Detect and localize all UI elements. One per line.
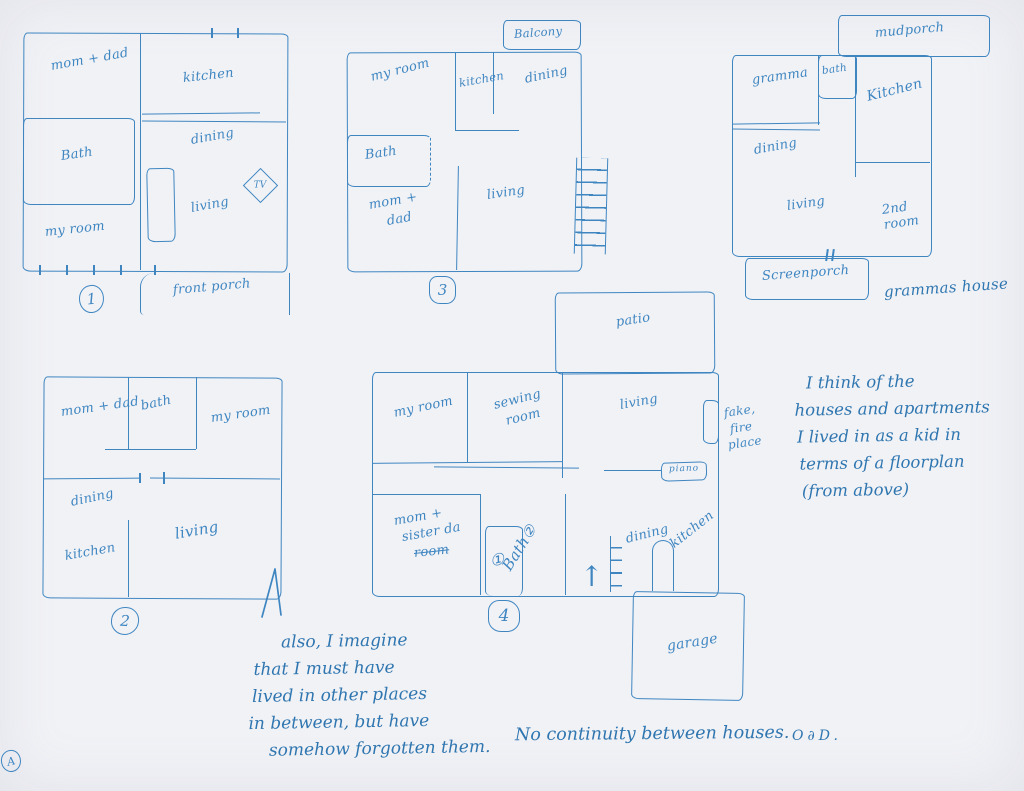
floor-plan-2: mom + dad bath my room dining kitchen li…: [43, 377, 293, 637]
basement-stairs: [610, 536, 622, 592]
scanned-sketch-page: TV mom + dad kitchen Bath dining living …: [0, 0, 1024, 791]
continuity-note: No continuity between houses.: [515, 723, 790, 745]
window-tick: [93, 265, 95, 275]
floor-plan-3: Balcony my room kitchen dining Bath mom …: [347, 20, 617, 300]
plan4-patio-label: patio: [615, 310, 652, 330]
fireplace-box: [703, 400, 719, 444]
note-line: houses and apartments: [794, 393, 990, 423]
window-tick: [237, 28, 239, 38]
plan4-garage-box: garage: [631, 591, 745, 701]
right-margin-note: I think of the houses and apartments I l…: [794, 366, 992, 504]
window-tick: [39, 265, 41, 275]
plan1-wall: [140, 33, 141, 270]
grammas-caption: grammas house: [883, 274, 1008, 301]
door-arc: [652, 540, 674, 591]
window-tick: [66, 265, 68, 275]
plan4-wall: [480, 494, 481, 595]
piano-label: piano: [669, 463, 700, 474]
window-tick: [211, 28, 213, 38]
grammas-wall: [855, 55, 856, 177]
plan1-front-porch: front porch: [140, 273, 290, 315]
plan2-wall: [105, 449, 196, 450]
plan4-wall: [372, 494, 480, 495]
note-line: (from above): [802, 474, 992, 504]
plan2-number-badge: 2: [110, 606, 140, 636]
floor-plan-grammas: mudporch gramma bath Kitchen dining livi…: [732, 15, 1024, 311]
stairs: [574, 158, 609, 255]
bottom-left-note: also, I imagine that I must have lived i…: [247, 626, 491, 765]
plan4-fireplace-note-1: fake,: [723, 402, 756, 420]
note-line: I lived in as a kid in: [797, 420, 991, 450]
piano-box: piano: [661, 461, 708, 482]
grammas-bath-walls: [818, 55, 857, 99]
plan1-number-badge: 1: [78, 284, 106, 314]
corner-a-badge: A: [0, 748, 23, 774]
floor-plan-1: TV mom + dad kitchen Bath dining living …: [23, 33, 289, 313]
grammas-wall: [855, 162, 930, 163]
grammas-screenporch-label: Screenporch: [761, 263, 849, 284]
caret-mark: [258, 565, 292, 621]
entry-arrow: ↑: [580, 560, 604, 593]
grammas-mudporch-box: mudporch: [838, 15, 990, 57]
plan4-number-badge: 4: [488, 600, 520, 632]
grammas-mudporch-label: mudporch: [874, 20, 944, 41]
tv-label: TV: [254, 180, 267, 190]
plan3-bath-walls: [347, 135, 431, 187]
plan4-fireplace-note-3: place: [727, 433, 763, 452]
initials: O∂D.: [792, 728, 842, 744]
plan3-wall: [455, 130, 519, 131]
door-tick: [139, 473, 141, 483]
plan4-wall: [562, 372, 563, 478]
note-line: terms of a floorplan: [799, 447, 991, 477]
plan3-balcony-box: Balcony: [503, 20, 581, 50]
note-line: that I must have: [253, 653, 489, 684]
plan2-wall: [196, 377, 197, 449]
plan4-wall: [604, 470, 661, 471]
plan2-wall: [128, 377, 129, 449]
note-line: I think of the: [806, 366, 990, 396]
plan4-garage-label: garage: [666, 631, 719, 655]
note-line: lived in other places: [252, 680, 490, 711]
plan4-wall: [565, 494, 566, 595]
note-line: somehow forgotten them.: [269, 734, 491, 765]
plan2-wall: [128, 520, 129, 597]
plan4-wall: [467, 372, 468, 462]
plan4-patio-box: patio: [555, 291, 716, 374]
plan3-balcony-label: Balcony: [514, 24, 563, 41]
plan1-porch-label: front porch: [172, 276, 251, 298]
plan1-couch: [146, 168, 176, 243]
window-tick: [120, 265, 122, 275]
door-tick: [163, 472, 165, 484]
note-line: also, I imagine: [281, 626, 489, 657]
plan4-fireplace-note-2: fire: [729, 419, 753, 436]
plan3-wall: [455, 52, 456, 130]
note-line: in between, but have: [248, 707, 490, 738]
grammas-screenporch-box: Screenporch: [745, 258, 869, 300]
